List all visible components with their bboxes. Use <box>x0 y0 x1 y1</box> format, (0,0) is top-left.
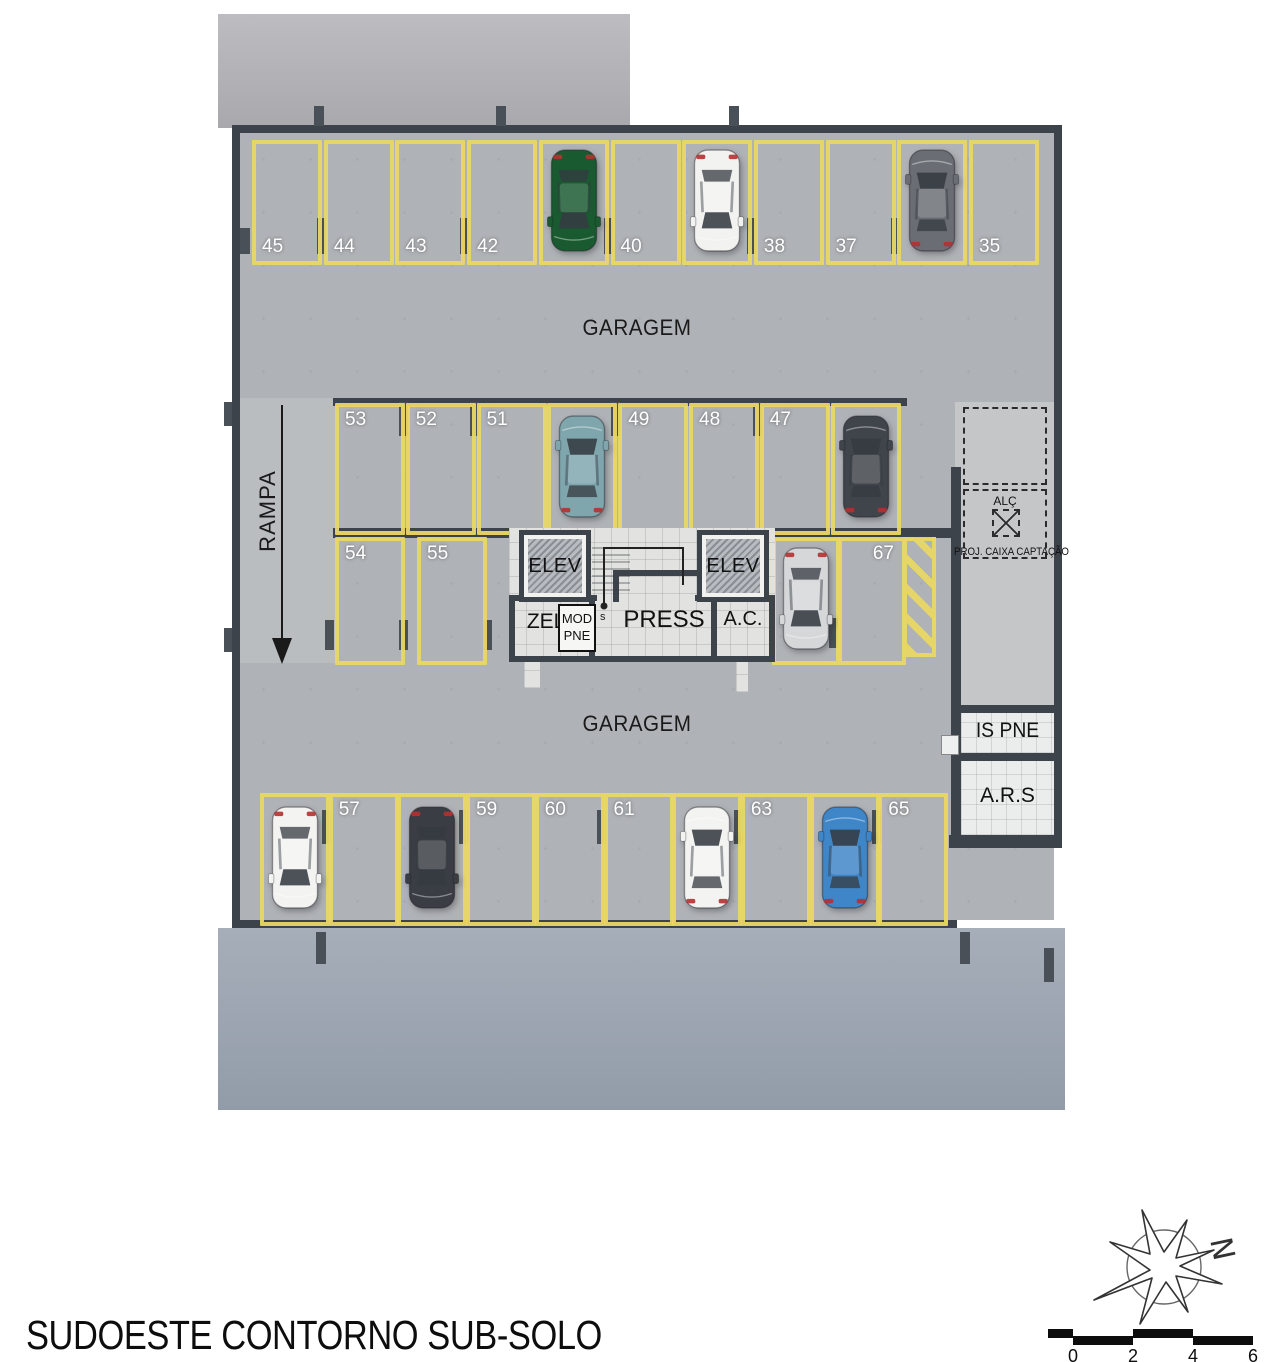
pilaster <box>829 618 838 648</box>
pilaster <box>317 218 326 254</box>
column-stub <box>240 228 250 254</box>
pilaster <box>747 218 756 254</box>
core-drain <box>736 662 748 692</box>
rampa-label: RAMPA <box>255 431 281 591</box>
pilaster <box>470 402 479 436</box>
scale-bar: 0 2 4 6 <box>1048 1329 1260 1362</box>
column-stub <box>496 106 506 126</box>
wall-top <box>232 125 1062 133</box>
garagem-top-label: GARAGEM <box>582 315 691 341</box>
column-stub <box>729 106 739 126</box>
mod-pne-line1: MOD <box>562 611 592 628</box>
page-title: SUDOESTE CONTORNO SUB-SOLO <box>26 1312 602 1359</box>
projection-box-upper <box>963 407 1047 485</box>
press-room-label: PRESS <box>617 606 711 634</box>
pilaster <box>483 620 492 650</box>
compass-rose: N <box>1094 1210 1241 1324</box>
scale-bar-segment <box>1073 1336 1133 1345</box>
alc-label: ALÇ <box>965 494 1045 508</box>
wall-rooms-bottom <box>949 835 1062 848</box>
pilaster <box>460 218 469 254</box>
sink-fixture <box>941 735 959 755</box>
floor-plan-page: 4544434240383735 535251494847 5455 67 57… <box>0 0 1280 1362</box>
wall-right <box>1054 125 1062 848</box>
column-stub <box>314 106 324 126</box>
pilaster <box>604 218 613 254</box>
elevator-shaft-left: ELEV <box>519 530 591 602</box>
wall-bottom <box>232 920 957 928</box>
pilaster <box>399 402 408 436</box>
scale-bar-segment <box>1133 1329 1193 1338</box>
wall-row2-top <box>333 398 907 406</box>
elevator-right-label: ELEV <box>706 555 759 578</box>
exterior-top-area <box>218 14 630 128</box>
scale-tick-0: 0 <box>1068 1346 1078 1362</box>
pilaster <box>597 810 606 844</box>
column-stub <box>224 402 232 426</box>
pilaster <box>459 810 468 844</box>
north-label: N <box>1202 1234 1241 1263</box>
scale-tick-2: 2 <box>1128 1346 1138 1362</box>
core-drain <box>524 662 540 688</box>
column-stub <box>316 932 326 964</box>
elevator-shaft-right: ELEV <box>697 530 769 602</box>
is-pne-label: IS PNE <box>965 719 1051 743</box>
alc-symbol <box>992 509 1020 537</box>
pilaster <box>322 810 331 844</box>
garagem-bottom-label: GARAGEM <box>582 711 691 737</box>
core-wall <box>769 597 775 662</box>
exterior-apron-area <box>218 928 1065 1110</box>
column-stub <box>224 628 232 652</box>
pilaster <box>891 218 900 254</box>
pilaster <box>872 810 881 844</box>
elevator-left-label: ELEV <box>528 555 581 578</box>
wall-ispne-top <box>961 705 1062 713</box>
ars-label: A.R.S <box>961 784 1054 808</box>
core-wall <box>509 656 775 662</box>
pilaster <box>611 402 620 436</box>
mod-pne-box: MOD PNE <box>558 604 596 652</box>
pilaster <box>734 810 743 844</box>
wall-left <box>232 125 240 928</box>
scale-tick-4: 4 <box>1188 1346 1198 1362</box>
column-stub <box>960 932 970 964</box>
no-parking-hatch <box>903 537 936 657</box>
compass-star <box>1094 1210 1222 1324</box>
pilaster <box>325 620 334 650</box>
mod-pne-line2: PNE <box>564 628 591 645</box>
garage-floor <box>240 133 1054 920</box>
column-stub <box>1044 948 1054 982</box>
ac-room-label: A.C. <box>717 608 769 631</box>
wall-rooms-left <box>951 467 961 848</box>
core-wall <box>613 570 619 602</box>
scale-tick-6: 6 <box>1248 1346 1258 1362</box>
pilaster <box>399 620 408 650</box>
wall-ispne-ars-divider <box>961 753 1062 761</box>
pilaster <box>753 402 762 436</box>
proj-caixa-label: PROJ. CAIXA CAPTAÇÃO <box>954 546 1069 558</box>
scale-bar-segment <box>1193 1336 1253 1345</box>
scale-bar-segment <box>1048 1329 1073 1338</box>
